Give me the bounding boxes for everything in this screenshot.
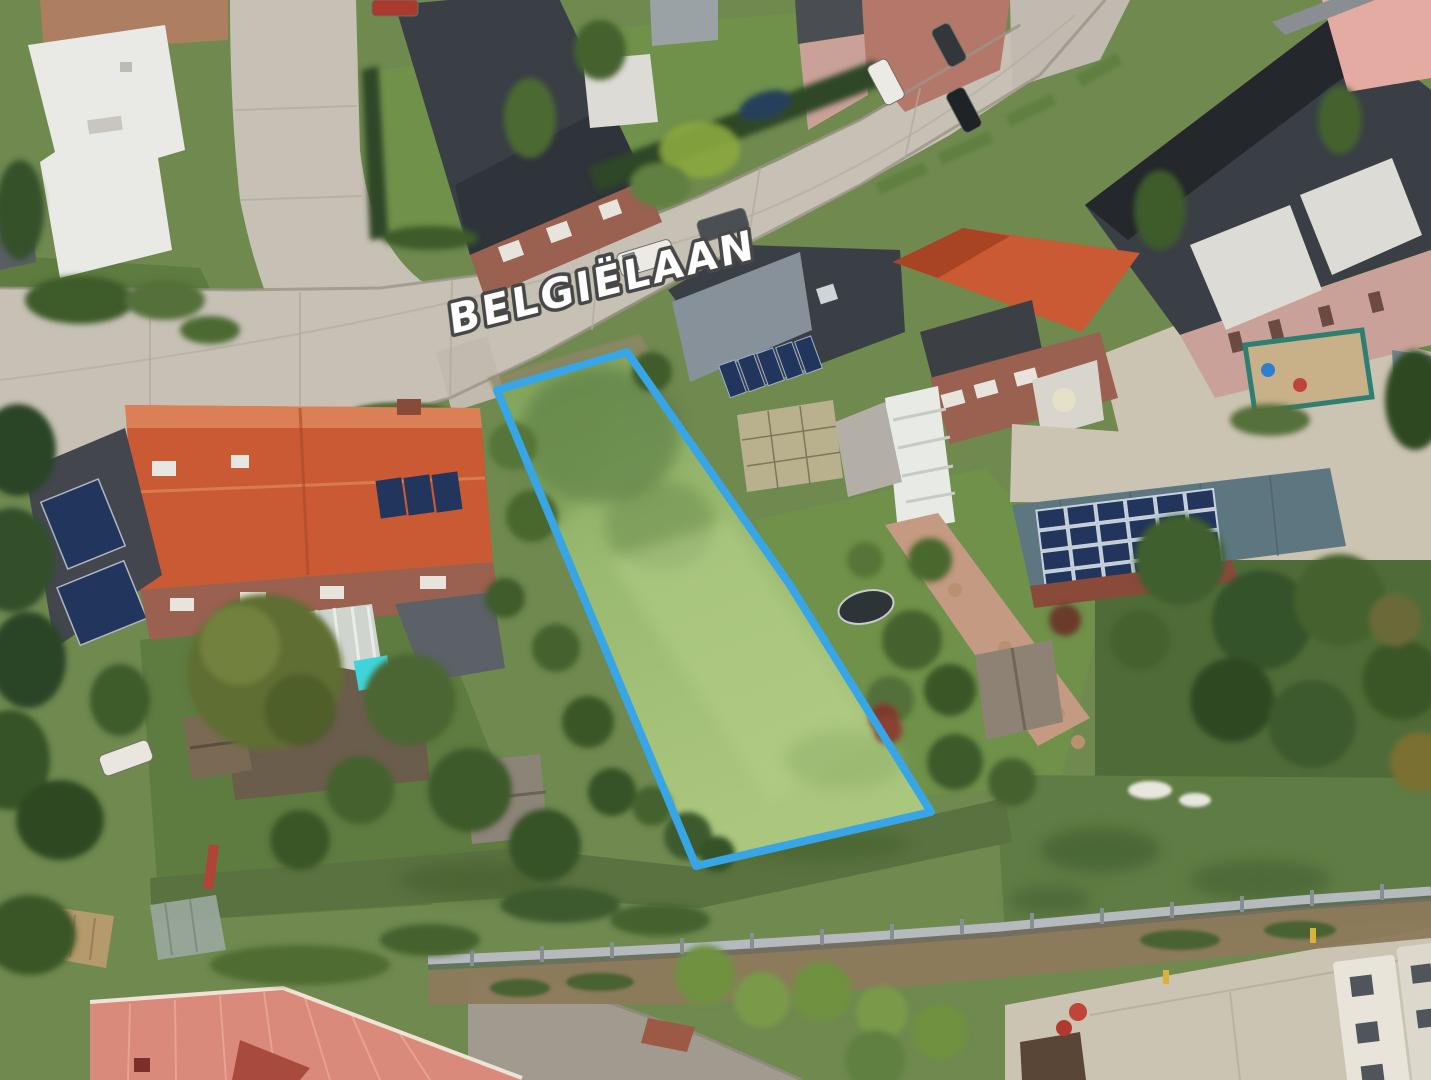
red-car — [372, 0, 418, 16]
conservatory — [737, 400, 843, 492]
aerial-photo: BELGIËLAAN — [0, 0, 1431, 1080]
greenhouse — [150, 895, 226, 960]
parasol — [1052, 388, 1076, 412]
small-grey-shed — [650, 0, 718, 46]
